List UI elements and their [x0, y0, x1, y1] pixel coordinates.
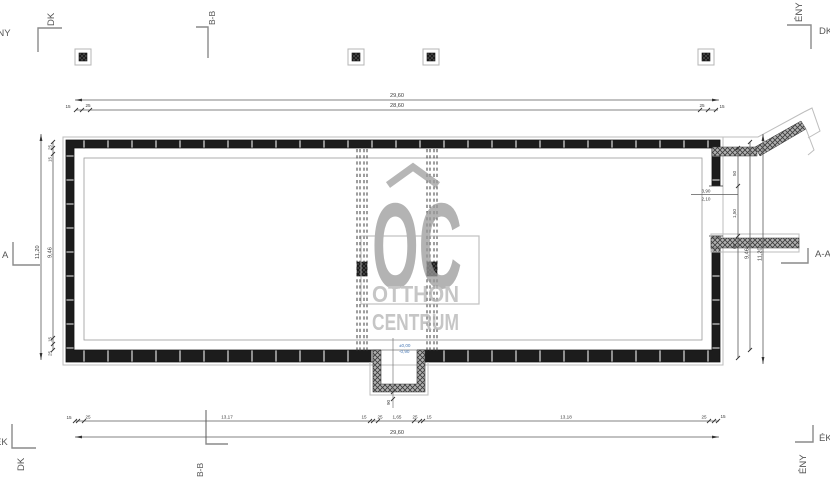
stairwell: ±0,00 -0,90 90: [370, 338, 428, 408]
watermark: OC OTTHON CENTRUM: [361, 167, 479, 335]
watermark-word: CENTRUM: [372, 309, 459, 335]
dimension-left: 11,20 9,46 25 15 15 25: [35, 134, 55, 360]
dim-label: 15: [426, 415, 432, 420]
dim-label: 1,50: [732, 209, 737, 218]
elevation-label: -0,90: [399, 349, 410, 354]
stair-width-label: 90: [386, 399, 391, 405]
section-label: A: [2, 250, 9, 261]
dim-label: 50: [732, 170, 737, 176]
orientation-label: DK: [46, 12, 57, 26]
orientation-label: ÉNY: [798, 454, 809, 474]
watermark-word: OTTHON: [372, 281, 459, 307]
orientation-label: ÉK: [819, 433, 830, 444]
orientation-mark-bottom-right: ÉK ÉNY: [795, 425, 830, 474]
dim-label: 9,46: [48, 247, 54, 258]
dim-label: 60: [732, 243, 737, 249]
dim-label: 15: [65, 104, 71, 109]
orientation-label: ÉNY: [794, 2, 805, 22]
dimension-bottom: 15 25 13,17 15 25 1,65 25 15 13,18 25 15…: [66, 414, 726, 438]
column: [357, 262, 367, 276]
section-label: A-A: [815, 249, 830, 260]
dim-label: 9,46: [745, 248, 751, 259]
dim-label: 29,60: [390, 430, 404, 436]
dim-label: 15: [720, 414, 726, 419]
dim-label: 25: [699, 103, 705, 108]
dim-label: 25: [701, 415, 707, 420]
dim-label: 3,90: [702, 189, 711, 194]
dim-label: 25: [85, 103, 91, 108]
section-label: B-B: [195, 463, 205, 478]
orientation-mark-top-right: ÉNY DK: [787, 2, 830, 49]
floor-plan-page: DK ÉNY ÉNY DK ÉK DK ÉK ÉNY B-B B-B A A-A: [0, 0, 830, 500]
section-mark-b-bottom: B-B: [195, 410, 228, 477]
pier-marker: [75, 49, 91, 65]
dim-label: 25: [377, 415, 383, 420]
dim-label: 13,17: [221, 415, 233, 420]
dim-label: 25: [85, 415, 91, 420]
orientation-mark-bottom-left: ÉK DK: [0, 424, 36, 471]
section-label: B-B: [207, 11, 217, 26]
dim-label: 13,18: [560, 415, 572, 420]
diagonal-wing-wall: [712, 108, 820, 156]
dimension-top: 29,60 28,60 15 25 25 15: [65, 93, 725, 112]
orientation-label: ÉNY: [0, 28, 11, 39]
section-mark-a-right: A-A: [781, 248, 830, 263]
orientation-mark-top-left: DK ÉNY: [0, 12, 62, 52]
floor-plan-drawing: DK ÉNY ÉNY DK ÉK DK ÉK ÉNY B-B B-B A A-A: [0, 0, 830, 500]
dim-label: 25: [412, 415, 418, 420]
dim-label: 25: [48, 144, 53, 150]
pier-markers: [75, 49, 714, 65]
dim-label: 15: [361, 415, 367, 420]
pier-marker: [348, 49, 364, 65]
pier-marker: [698, 49, 714, 65]
pier-marker: [423, 49, 439, 65]
dim-label: 15: [719, 104, 725, 109]
dim-label: 11,20: [758, 247, 764, 261]
dim-label: 28,60: [390, 103, 404, 109]
dim-label: 25: [48, 350, 53, 356]
dim-label: 11,20: [35, 245, 41, 259]
dim-label: 2,10: [702, 197, 711, 202]
orientation-label: DK: [16, 457, 27, 471]
dim-label: 29,60: [390, 93, 404, 99]
elevation-label: ±0,00: [399, 343, 411, 348]
section-mark-b-top: B-B: [196, 11, 217, 59]
orientation-label: ÉK: [0, 437, 8, 448]
dim-label: 1,65: [393, 415, 402, 420]
terrace-wall-stub: [711, 234, 799, 252]
dim-label: 15: [66, 415, 72, 420]
right-wall-opening: [709, 186, 722, 236]
orientation-label: DK: [819, 26, 830, 37]
dim-label: 15: [48, 336, 53, 342]
dim-label: 15: [48, 156, 53, 162]
